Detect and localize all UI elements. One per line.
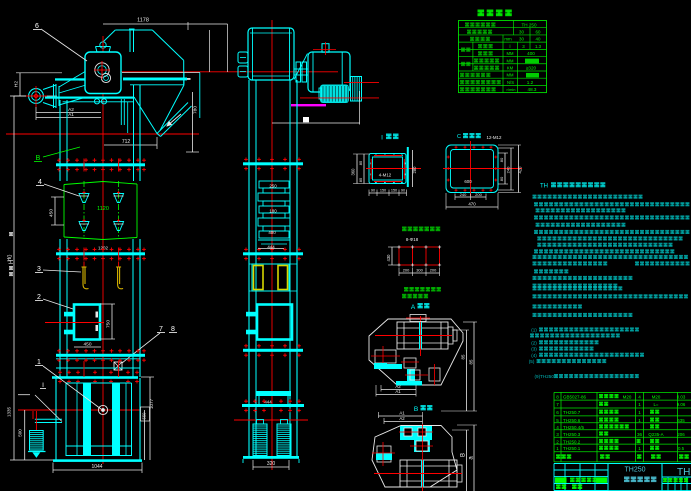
- svg-text:444: 444: [264, 400, 272, 405]
- svg-text:A1: A1: [68, 112, 74, 118]
- svg-text:60: 60: [536, 30, 541, 35]
- svg-text:470: 470: [468, 202, 476, 207]
- svg-text:550: 550: [142, 412, 147, 420]
- svg-text:A: A: [411, 304, 416, 311]
- svg-text:450: 450: [49, 209, 55, 217]
- svg-text:180: 180: [269, 209, 277, 214]
- svg-text:200: 200: [430, 268, 437, 273]
- svg-text:85: 85: [469, 359, 474, 364]
- svg-text:30: 30: [519, 37, 524, 42]
- svg-text:400: 400: [527, 51, 535, 56]
- svg-text:5: 5: [556, 418, 559, 423]
- svg-text:GB5027-86: GB5027-86: [563, 395, 587, 400]
- svg-text:A2: A2: [399, 416, 405, 421]
- svg-text:MM: MM: [507, 51, 514, 56]
- svg-text:36: 36: [637, 432, 643, 437]
- svg-text:8-Φ18: 8-Φ18: [406, 237, 419, 242]
- svg-text:150: 150: [380, 189, 386, 193]
- svg-text:48.3: 48.3: [528, 87, 537, 92]
- svg-text:300: 300: [416, 268, 423, 273]
- svg-text:80: 80: [499, 176, 504, 181]
- svg-text:280: 280: [412, 166, 417, 174]
- svg-text:635: 635: [677, 418, 685, 423]
- svg-text:600: 600: [464, 179, 472, 184]
- svg-text:r/min: r/min: [507, 87, 516, 92]
- svg-text:3: 3: [556, 432, 559, 437]
- svg-text:I: I: [381, 135, 383, 142]
- svg-text:MM: MM: [507, 58, 514, 63]
- svg-text:7: 7: [159, 326, 163, 333]
- svg-text:400: 400: [268, 230, 276, 235]
- svg-text:M20: M20: [652, 395, 661, 400]
- svg-text:9.06: 9.06: [677, 402, 686, 407]
- svg-text:1044: 1044: [91, 464, 102, 470]
- svg-text:150: 150: [391, 189, 397, 193]
- svg-text:750: 750: [106, 320, 112, 328]
- svg-text:M20: M20: [623, 395, 632, 400]
- svg-text:0.03: 0.03: [677, 395, 686, 400]
- svg-text:TH250.2: TH250.2: [563, 439, 581, 444]
- svg-text:500: 500: [18, 429, 23, 437]
- svg-text:≥320: ≥320: [526, 66, 537, 71]
- svg-text:2: 2: [37, 294, 41, 301]
- svg-text:6: 6: [35, 23, 39, 30]
- svg-text:H2: H2: [14, 81, 20, 87]
- svg-text:4-M12: 4-M12: [379, 173, 392, 178]
- svg-text:1335: 1335: [7, 406, 12, 417]
- svg-text:0.5: 0.5: [678, 446, 685, 451]
- svg-text:80: 80: [499, 157, 504, 162]
- svg-text:(2): (2): [531, 340, 537, 345]
- svg-text:1: 1: [638, 410, 641, 415]
- svg-text:40: 40: [536, 37, 541, 42]
- svg-text:780: 780: [193, 106, 199, 114]
- svg-text:TH250.4/5: TH250.4/5: [563, 425, 585, 430]
- svg-text:B: B: [36, 155, 41, 162]
- svg-text:450: 450: [83, 342, 91, 348]
- svg-text:B: B: [461, 453, 467, 457]
- svg-text:206: 206: [677, 432, 685, 437]
- svg-text:240: 240: [460, 192, 467, 197]
- svg-text:1.2: 1.2: [527, 80, 534, 85]
- svg-text:360: 360: [351, 168, 356, 176]
- svg-text:MM: MM: [507, 73, 514, 78]
- svg-text:200: 200: [403, 268, 410, 273]
- svg-text:420: 420: [518, 166, 523, 174]
- svg-text:(1): (1): [531, 328, 537, 333]
- svg-text:85: 85: [461, 354, 466, 359]
- svg-text:8: 8: [171, 326, 175, 333]
- svg-text:1: 1: [638, 446, 641, 451]
- svg-text:L=: L=: [653, 402, 658, 407]
- svg-text:I: I: [42, 382, 44, 389]
- svg-text:4: 4: [556, 425, 559, 430]
- svg-text:TH2: TH2: [677, 467, 691, 478]
- svg-text:12-M12: 12-M12: [487, 135, 502, 140]
- svg-text:1178: 1178: [137, 18, 149, 24]
- svg-text:l: l: [510, 44, 511, 49]
- svg-text:Q235-A: Q235-A: [648, 432, 663, 437]
- svg-text:1.3: 1.3: [535, 44, 542, 49]
- svg-text:(4): (4): [531, 353, 537, 358]
- svg-text:2: 2: [556, 439, 559, 444]
- svg-text:mm: mm: [504, 37, 512, 42]
- svg-text:4: 4: [638, 395, 641, 400]
- svg-text:H: H: [9, 260, 15, 264]
- svg-text:1: 1: [556, 446, 559, 451]
- svg-text:C: C: [457, 134, 461, 140]
- svg-text:1: 1: [638, 418, 641, 423]
- svg-text:6: 6: [556, 410, 559, 415]
- svg-text:1: 1: [37, 359, 41, 366]
- svg-text:240: 240: [506, 166, 511, 173]
- svg-text:1120: 1120: [97, 206, 109, 212]
- svg-text:85: 85: [358, 177, 363, 182]
- svg-text:TH250: TH250: [624, 467, 645, 474]
- svg-text:TH250.6: TH250.6: [563, 418, 581, 423]
- svg-text:30: 30: [519, 30, 524, 35]
- svg-text:90: 90: [371, 189, 375, 193]
- svg-text:KM: KM: [507, 66, 514, 71]
- svg-text:430: 430: [386, 254, 391, 262]
- svg-text:TH250.1: TH250.1: [563, 446, 581, 451]
- svg-text:712: 712: [122, 139, 131, 145]
- svg-text:N/S: N/S: [507, 80, 514, 85]
- svg-text:320: 320: [267, 461, 276, 467]
- svg-text:TH250.7: TH250.7: [563, 410, 581, 415]
- svg-text:(9)TH250: (9)TH250: [535, 374, 555, 379]
- svg-text:4: 4: [38, 179, 42, 186]
- svg-text:8: 8: [556, 395, 559, 400]
- svg-text:(3): (3): [531, 347, 537, 352]
- svg-text:250: 250: [269, 184, 277, 189]
- svg-text:1: 1: [638, 402, 641, 407]
- svg-text:200: 200: [475, 192, 482, 197]
- svg-text:7: 7: [556, 402, 559, 407]
- svg-text:A1: A1: [395, 389, 401, 394]
- svg-text:TH: TH: [540, 183, 548, 189]
- svg-text:(5): (5): [529, 359, 535, 364]
- svg-text:TH 250: TH 250: [521, 22, 537, 27]
- svg-text:TH250.3: TH250.3: [563, 432, 581, 437]
- svg-text:B: B: [414, 406, 418, 413]
- svg-text:A1: A1: [399, 411, 405, 416]
- svg-text:3: 3: [37, 266, 41, 273]
- svg-text:85: 85: [358, 160, 363, 165]
- svg-text:90: 90: [401, 189, 405, 193]
